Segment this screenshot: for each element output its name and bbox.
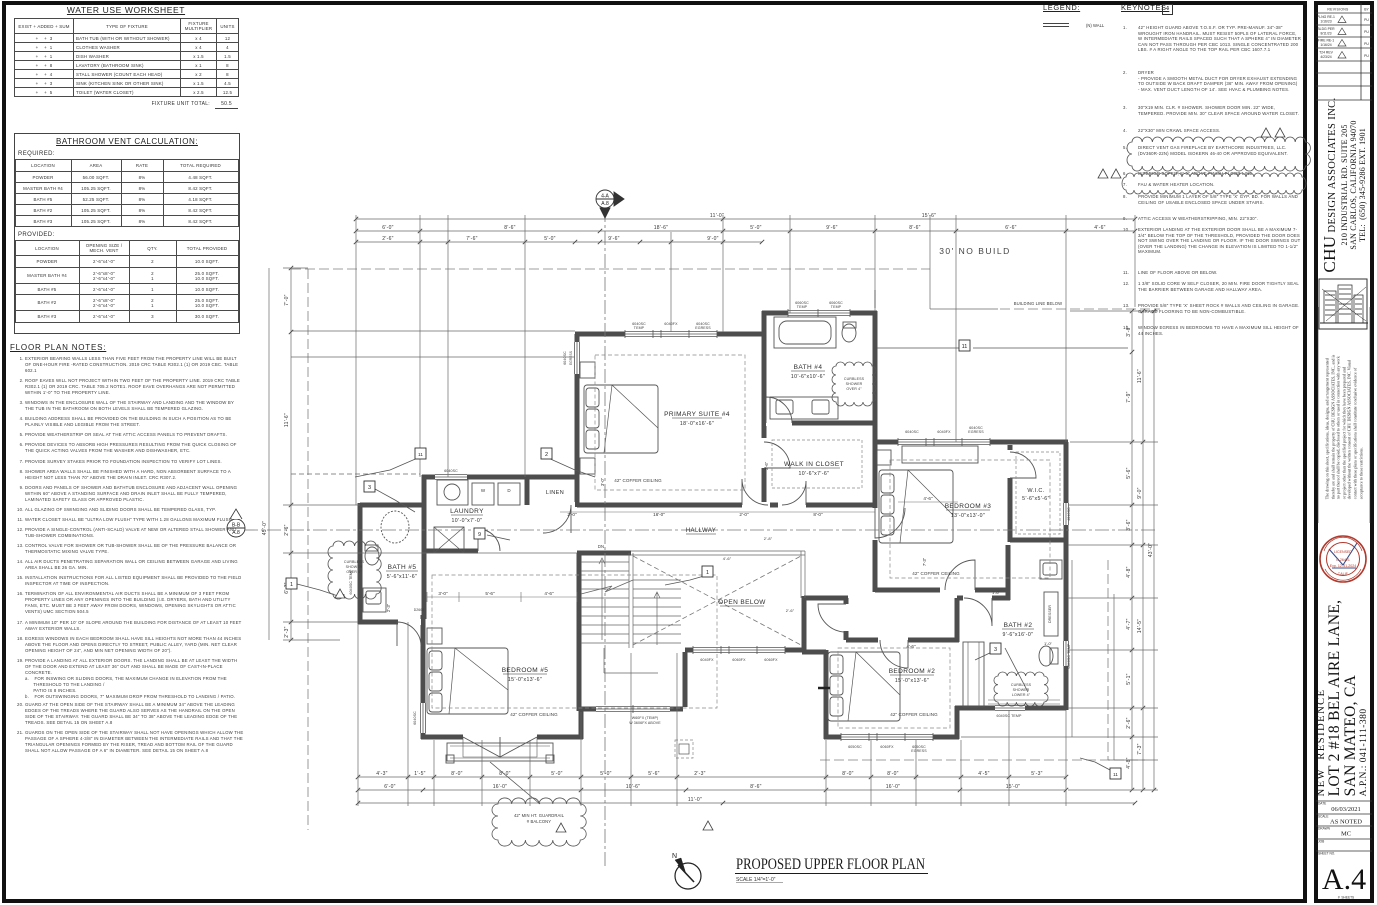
svg-text:1'-5": 1'-5" [414,771,425,777]
svg-text:8'-0": 8'-0" [451,771,462,777]
svg-text:CALIF.: CALIF. [1338,572,1349,576]
svg-text:4'-6": 4'-6" [1094,225,1105,231]
svg-text:10'-0"x7'-0": 10'-0"x7'-0" [452,518,483,524]
svg-text:13'-0"x13'-0": 13'-0"x13'-0" [951,513,985,519]
svg-text:D: D [507,488,511,493]
svg-text:16'-0": 16'-0" [653,512,665,517]
svg-text:BEDROOM #2: BEDROOM #2 [889,668,936,675]
svg-text:2'-3": 2'-3" [694,771,705,777]
svg-text:5'-0": 5'-0" [600,771,611,777]
svg-text:C-26421: C-26421 [1336,558,1350,562]
svg-text:4'-6": 4'-6" [906,644,916,649]
svg-text:9: 9 [478,532,481,538]
svg-text:2'-8": 2'-8" [764,536,773,541]
svg-text:8'-6": 8'-6" [750,784,761,790]
svg-text:10'-6"x10'-6": 10'-6"x10'-6" [791,374,825,380]
svg-text:2'-0": 2'-0" [739,512,749,517]
svg-text:SHOWER: SHOWER [846,382,863,386]
svg-text:42" MIN HT. GUARDRAIL: 42" MIN HT. GUARDRAIL [514,813,565,818]
svg-text:4'-6": 4'-6" [723,556,732,561]
svg-text:EGRESS: EGRESS [569,351,573,365]
svg-text:2'-6": 2'-6" [382,236,393,242]
svg-text:6040SC: 6040SC [444,469,458,473]
svg-text:15'-6": 15'-6" [922,213,937,219]
svg-text:2'-3": 2'-3" [386,603,391,612]
svg-text:PU: PU [1364,30,1369,34]
svg-text:10'-6"x7'-6": 10'-6"x7'-6" [799,471,830,477]
svg-text:LAUNDRY: LAUNDRY [450,508,484,515]
svg-text:6040FX: 6040FX [700,658,714,662]
svg-text:43'-0": 43'-0" [1148,543,1154,558]
svg-text:5'-6": 5'-6" [1126,467,1132,478]
svg-text:16'-0": 16'-0" [886,784,901,790]
svg-text:7'-9": 7'-9" [1126,391,1132,402]
svg-text:8'-6": 8'-6" [909,225,920,231]
svg-text:A.4: A.4 [1322,863,1366,896]
svg-text:BATH #5: BATH #5 [388,564,417,571]
svg-text:6040SC TEMP: 6040SC TEMP [1067,643,1071,669]
svg-text:6040SC: 6040SC [413,711,417,725]
svg-text:CURBLESS: CURBLESS [344,560,365,564]
svg-text:2'-0": 2'-0" [567,512,577,517]
svg-text:3: 3 [368,485,371,491]
svg-text:CURBLESS: CURBLESS [1011,683,1032,687]
svg-text:PU: PU [1364,42,1369,46]
svg-text:EGRESS: EGRESS [911,749,927,753]
svg-text:9'-6": 9'-6" [608,236,619,242]
svg-text:W 3606FX ABOVE: W 3606FX ABOVE [629,721,661,725]
svg-text:4'-7": 4'-7" [1126,618,1132,629]
svg-text:2'-6": 2'-6" [284,524,290,535]
svg-text:TEMP: TEMP [831,305,842,309]
svg-text:18'-0"x16'-6": 18'-0"x16'-6" [680,421,714,427]
svg-text:9'-6"x16'-0": 9'-6"x16'-0" [1003,632,1034,638]
svg-text:WALK IN CLOSET: WALK IN CLOSET [784,461,844,468]
svg-text:DRAWN: DRAWN [1318,827,1331,831]
svg-text:CURBLESS: CURBLESS [844,377,865,381]
svg-text:REVISIONS: REVISIONS [1327,8,1349,12]
svg-text:PROPOSED UPPER FLOOR PLAN: PROPOSED UPPER FLOOR PLAN [736,856,925,873]
svg-text:8'-0": 8'-0" [842,771,853,777]
svg-text:BLDG PER: BLDG PER [1317,27,1335,31]
svg-text:4/23/24: 4/23/24 [1320,55,1331,59]
svg-text:BEDROOM #3: BEDROOM #3 [945,503,992,510]
svg-text:W: W [481,488,486,493]
svg-text:3'-6": 3'-6" [1126,325,1132,336]
svg-text:3'-0": 3'-0" [438,591,448,596]
svg-text:6040SC TEMP: 6040SC TEMP [996,714,1022,718]
svg-text:MC: MC [1341,831,1351,838]
svg-text:1'-0": 1'-0" [1044,641,1053,646]
svg-text:FIRE RE-1: FIRE RE-1 [1318,39,1335,43]
svg-text:5'-0": 5'-0" [544,236,555,242]
svg-text:4-A: 4-A [601,194,609,200]
svg-text:10'-6": 10'-6" [626,784,641,790]
svg-text:# BALCONY: # BALCONY [527,819,552,824]
svg-text:DRESSER: DRESSER [1048,605,1052,623]
svg-text:LICENSED: LICENSED [1334,550,1352,554]
svg-text:5'-6": 5'-6" [648,771,659,777]
svg-text:6060FX: 6060FX [764,658,778,662]
svg-text:5'-0": 5'-0" [750,225,761,231]
svg-text:AS NOTED: AS NOTED [1330,819,1362,826]
svg-text:A.8: A.8 [601,201,609,207]
svg-text:7'-0": 7'-0" [284,294,290,305]
svg-text:6040SC: 6040SC [563,351,567,365]
svg-text:T24 REV: T24 REV [1319,51,1333,55]
svg-text:BEDROOM #5: BEDROOM #5 [502,667,549,674]
svg-text:6060FX: 6060FX [880,745,894,749]
svg-text:OPEN BELOW: OPEN BELOW [718,599,766,606]
svg-text:11'-6": 11'-6" [1137,369,1143,383]
svg-text:3: 3 [994,647,997,653]
svg-text:42" COFFER CEILING: 42" COFFER CEILING [510,712,558,717]
svg-text:3'-6": 3'-6" [764,461,769,470]
svg-text:6050SC: 6050SC [848,745,862,749]
svg-text:45'-0": 45'-0" [262,521,268,536]
svg-text:2'-6": 2'-6" [1126,717,1132,728]
svg-text:4'-8": 4'-8" [1126,757,1132,768]
svg-text:DATE: DATE [1318,802,1326,806]
svg-text:1/16/24: 1/16/24 [1320,43,1331,47]
svg-text:6040FX: 6040FX [664,322,678,326]
svg-text:SCALE: SCALE [1318,815,1328,819]
svg-text:4'-5": 4'-5" [978,771,989,777]
svg-text:2'-3": 2'-3" [284,626,290,637]
svg-text:OVER 4": OVER 4" [846,387,862,391]
svg-text:2'-6": 2'-6" [786,608,795,613]
svg-text:W60FX (TEMP): W60FX (TEMP) [632,716,659,720]
svg-text:PRIMARY SUITE #4: PRIMARY SUITE #4 [664,411,730,418]
svg-text:18'-6": 18'-6" [654,225,669,231]
svg-text:5'-0": 5'-0" [551,771,562,777]
svg-text:PU: PU [1364,54,1369,58]
svg-text:W.I.C.: W.I.C. [1027,488,1044,494]
svg-text:6040SC: 6040SC [905,430,919,434]
svg-text:9'-0": 9'-0" [707,236,718,242]
svg-text:9'-6": 9'-6" [826,225,837,231]
svg-text:LOWER 4": LOWER 4" [1012,693,1031,697]
svg-text:SHEET NO.: SHEET NO. [1318,852,1335,856]
svg-text:15'-0"x13'-6": 15'-0"x13'-6" [895,678,929,684]
svg-text:8'-0": 8'-0" [499,771,510,777]
svg-text:PLNG RE-1: PLNG RE-1 [1317,15,1335,19]
svg-text:42" COFFER CEILING: 42" COFFER CEILING [614,478,662,483]
svg-text:OVER 4": OVER 4" [346,570,362,574]
svg-text:5'-3": 5'-3" [1031,771,1042,777]
svg-text:30' NO BUILD: 30' NO BUILD [939,246,1011,256]
svg-text:6'-0": 6'-0" [384,784,395,790]
svg-text:8'-0": 8'-0" [887,771,898,777]
svg-text:11: 11 [962,344,968,350]
svg-text:7'-3": 7'-3" [1137,743,1143,754]
svg-text:42" COFFER CEILING: 42" COFFER CEILING [912,571,960,576]
svg-text:SHOWER: SHOWER [1013,688,1030,692]
svg-text:LINEN: LINEN [546,490,564,496]
svg-text:BATH #4: BATH #4 [794,364,823,371]
svg-text:4040SC: 4040SC [1067,507,1071,521]
svg-text:14'-5": 14'-5" [1137,619,1143,634]
svg-text:BUILDING LINE BELOW: BUILDING LINE BELOW [1014,301,1062,306]
svg-text:Exp. 12-31-2024: Exp. 12-31-2024 [1330,564,1357,568]
svg-text:15'-0"x13'-6": 15'-0"x13'-6" [508,677,542,683]
svg-text:EGRESS: EGRESS [968,430,984,434]
svg-text:4'-8": 4'-8" [1126,566,1132,577]
svg-text:TEMP: TEMP [797,305,808,309]
svg-text:1/16/23: 1/16/23 [1320,20,1331,24]
svg-text:1: 1 [706,570,709,576]
svg-text:9'-0": 9'-0" [1137,487,1143,498]
svg-text:42" COFFER CEILING: 42" COFFER CEILING [890,712,938,717]
svg-text:7'-6": 7'-6" [466,236,477,242]
svg-text:6'-0": 6'-0" [382,225,393,231]
svg-text:D2660: D2660 [414,608,425,612]
svg-text:PU: PU [1364,18,1369,22]
svg-text:6040FX: 6040FX [937,430,951,434]
svg-text:11: 11 [418,452,423,457]
svg-text:BATH #2: BATH #2 [1004,622,1033,629]
svg-text:HALLWAY: HALLWAY [686,528,716,534]
svg-text:7'-3": 7'-3" [922,557,927,566]
svg-text:4'-6": 4'-6" [923,496,933,501]
svg-text:1: 1 [290,582,293,588]
svg-text:6'-6": 6'-6" [1005,225,1016,231]
svg-text:TEMP: TEMP [634,326,645,330]
svg-text:5'-1": 5'-1" [1126,673,1132,684]
svg-text:JOB: JOB [1318,840,1324,844]
svg-text:11'-0": 11'-0" [710,213,724,219]
svg-text:5'-6"x11'-6": 5'-6"x11'-6" [387,574,418,580]
svg-text:1'-6": 1'-6" [992,590,1001,595]
svg-text:5'-6": 5'-6" [485,591,495,596]
svg-text:4'-6": 4'-6" [544,591,554,596]
svg-text:4'-3": 4'-3" [376,771,387,777]
svg-text:EGRESS: EGRESS [695,326,711,330]
svg-text:06/03/2021: 06/03/2021 [1331,806,1361,813]
svg-text:6060FX: 6060FX [732,658,746,662]
svg-text:15'-0": 15'-0" [1006,784,1021,790]
svg-text:N: N [672,853,677,860]
svg-text:11: 11 [1113,772,1118,777]
svg-text:8'-0": 8'-0" [813,512,823,517]
svg-text:11'-6": 11'-6" [284,413,290,427]
svg-text:11'-0": 11'-0" [688,797,702,803]
svg-text:SHOWER: SHOWER [346,565,363,569]
svg-text:2: 2 [545,452,548,458]
svg-text:SCALE 1/4"=1'-0": SCALE 1/4"=1'-0" [736,877,776,883]
svg-text:3'-6": 3'-6" [1126,519,1132,530]
svg-text:3'-0": 3'-0" [600,477,605,486]
svg-text:8'-6": 8'-6" [504,225,515,231]
svg-text:# SHEETS: # SHEETS [1338,896,1354,900]
svg-text:DN: DN [598,544,604,549]
svg-text:BY: BY [1364,8,1369,12]
svg-text:16'-0": 16'-0" [493,784,508,790]
svg-text:5'-6"x5'-6": 5'-6"x5'-6" [1022,496,1050,502]
svg-text:8/11/23: 8/11/23 [1320,32,1331,36]
